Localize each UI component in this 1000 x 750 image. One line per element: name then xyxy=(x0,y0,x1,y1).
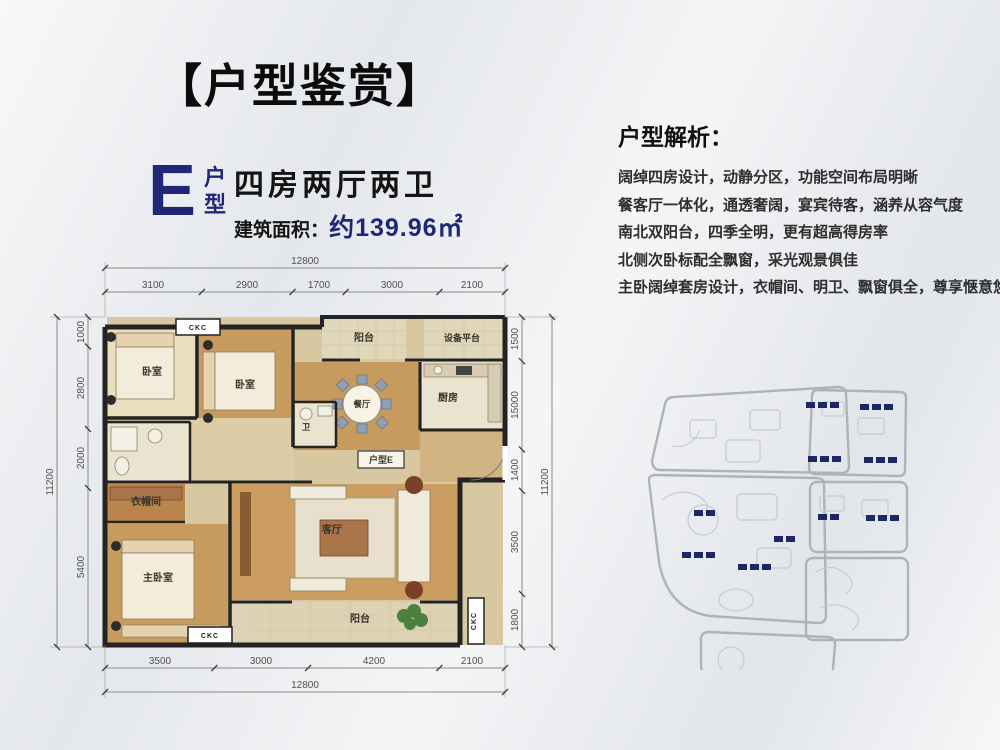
room-label-balcony-top: 阳台 xyxy=(354,331,374,344)
analysis-heading: 户型解析： xyxy=(618,118,993,152)
unit-area-text: 建筑面积： 约139.96㎡ xyxy=(234,208,463,244)
analysis-line: 北侧次卧标配全飘窗，采光观景俱佳 xyxy=(618,247,993,275)
dim: 2000 xyxy=(76,446,87,469)
window-code: CKC xyxy=(201,633,219,640)
unit-area-label: 建筑面积： xyxy=(234,215,329,242)
unit-texts: 四房两厅两卫 建筑面积： 约139.96㎡ xyxy=(234,160,463,244)
room-label-dining: 餐厅 xyxy=(352,399,371,409)
unit-area-value: 约139.96㎡ xyxy=(329,208,463,244)
site-buildings xyxy=(682,402,899,570)
dim: 1700 xyxy=(308,280,331,291)
dim: 5400 xyxy=(76,555,87,578)
page-title: 【户型鉴赏】 xyxy=(120,50,480,116)
analysis-panel: 户型解析： 阔绰四房设计，动静分区，功能空间布局明晰 餐客厅一体化，通透奢阔，宴… xyxy=(618,118,993,302)
unit-type-stack: 户 型 xyxy=(204,164,226,218)
dim: 3500 xyxy=(149,656,172,667)
room-label-kitchen: 厨房 xyxy=(438,391,458,404)
dim: 15000 xyxy=(510,391,521,419)
room-label-cloak: 衣帽间 xyxy=(131,495,161,508)
dim: 3100 xyxy=(142,280,165,291)
dim: 2800 xyxy=(76,376,87,399)
room-label-bath: 卫 xyxy=(302,422,311,432)
unit-type-char-hu: 户 xyxy=(204,164,226,191)
dim: 2100 xyxy=(461,280,484,291)
dim: 3000 xyxy=(250,656,273,667)
window-code: CKC xyxy=(189,325,207,332)
room-label-master: 主卧室 xyxy=(143,571,173,584)
dim-right-total: 11200 xyxy=(540,468,551,496)
site-plan xyxy=(615,370,1000,670)
dim-left-total: 11200 xyxy=(45,468,56,496)
dim: 1800 xyxy=(510,608,521,631)
dim-top-total: 12800 xyxy=(291,256,319,267)
window-code: CKC xyxy=(471,612,478,630)
dim: 2900 xyxy=(236,280,259,291)
dim: 2100 xyxy=(461,656,484,667)
dim: 1000 xyxy=(76,320,87,343)
dim: 3500 xyxy=(510,530,521,553)
room-label-living: 客厅 xyxy=(321,523,342,536)
dim: 1400 xyxy=(510,458,521,481)
room-label-bedroom: 卧室 xyxy=(142,365,162,378)
room-label-equipment: 设备平台 xyxy=(444,332,480,343)
analysis-line: 阔绰四房设计，动静分区，功能空间布局明晰 xyxy=(618,164,993,192)
room-label-bedroom: 卧室 xyxy=(235,378,255,391)
poster: 【户型鉴赏】 E 户 型 四房两厅两卫 建筑面积： 约139.96㎡ 户型解析：… xyxy=(0,0,1000,750)
dim: 4200 xyxy=(363,656,386,667)
dim: 1500 xyxy=(510,327,521,350)
analysis-line: 餐客厅一体化，通透奢阔，宴宾待客，涵养从容气度 xyxy=(618,192,993,220)
unit-summary: E 户 型 四房两厅两卫 建筑面积： 约139.96㎡ xyxy=(148,156,464,234)
dim: 3000 xyxy=(381,280,404,291)
analysis-line: 南北双阳台，四季全明，更有超高得房率 xyxy=(618,219,993,247)
dim-bottom-total: 12800 xyxy=(291,680,319,691)
unit-layout-text: 四房两厅两卫 xyxy=(234,160,463,204)
unit-letter: E xyxy=(148,156,194,226)
unit-type-char-xing: 型 xyxy=(204,191,226,218)
unit-tag-label: 户型E xyxy=(369,454,393,465)
analysis-line: 主卧阔绰套房设计，衣帽间、明卫、飘窗俱全，尊享惬意悠然 xyxy=(618,274,993,302)
floor-plan: CKC CKC CKC 卧室 卧室 阳台 设备平台 餐厅 厨房 卫 衣帽间 客厅… xyxy=(40,250,600,710)
room-label-balcony-bottom: 阳台 xyxy=(350,612,370,625)
